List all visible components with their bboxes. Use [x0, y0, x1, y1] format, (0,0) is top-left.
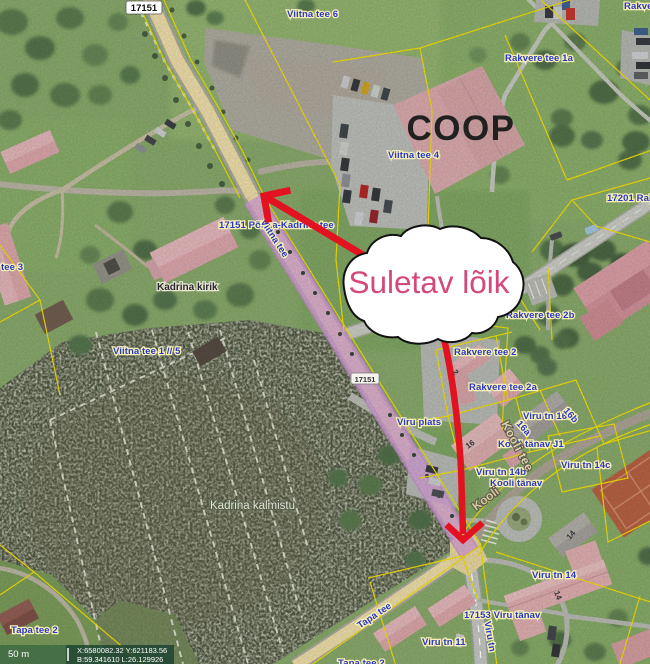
svg-text:17151: 17151	[131, 3, 158, 14]
svg-text:50 m: 50 m	[8, 649, 29, 660]
svg-text:Viitna tee 4: Viitna tee 4	[388, 150, 440, 161]
svg-text:17153 Viru tänav: 17153 Viru tänav	[464, 610, 541, 621]
svg-text:Rakvere tee 2: Rakvere tee 2	[454, 347, 517, 358]
svg-text:X:6580082.32 Y:621183.56: X:6580082.32 Y:621183.56	[77, 646, 167, 655]
svg-text:17151: 17151	[355, 375, 376, 384]
svg-text:17201 Rakvere: 17201 Rakvere	[607, 193, 650, 204]
svg-text:Viitna tee 1 // 5: Viitna tee 1 // 5	[113, 346, 181, 357]
svg-text:Rakvere: Rakvere	[624, 1, 650, 12]
svg-text:Viitna tee 6: Viitna tee 6	[287, 9, 338, 20]
svg-text:Viru tn 14: Viru tn 14	[532, 570, 577, 581]
svg-text:Viitna tee 3: Viitna tee 3	[0, 262, 23, 273]
svg-text:Rakvere tee 2b: Rakvere tee 2b	[506, 310, 575, 321]
svg-text:Rakvere tee 1a: Rakvere tee 1a	[505, 53, 574, 64]
svg-text:Viru plats: Viru plats	[397, 417, 441, 428]
svg-text:Kooli tänav: Kooli tänav	[490, 478, 543, 489]
svg-text:Viru tn 14b: Viru tn 14b	[476, 467, 526, 478]
svg-text:Kadrina kirik: Kadrina kirik	[157, 282, 218, 293]
svg-text:Tapa tee 2: Tapa tee 2	[338, 658, 385, 664]
svg-text:Viru tn 14c: Viru tn 14c	[561, 460, 611, 471]
svg-text:Rakvere tee 2a: Rakvere tee 2a	[469, 382, 538, 393]
svg-text:Viru tn 11: Viru tn 11	[422, 637, 466, 648]
svg-text:Kadrina kalmistu: Kadrina kalmistu	[210, 500, 295, 512]
svg-text:Tapa tee 2: Tapa tee 2	[11, 625, 58, 636]
svg-text:Suletav lõik: Suletav lõik	[348, 264, 509, 300]
svg-text:B:59.341610 L:26.129926: B:59.341610 L:26.129926	[77, 655, 163, 664]
